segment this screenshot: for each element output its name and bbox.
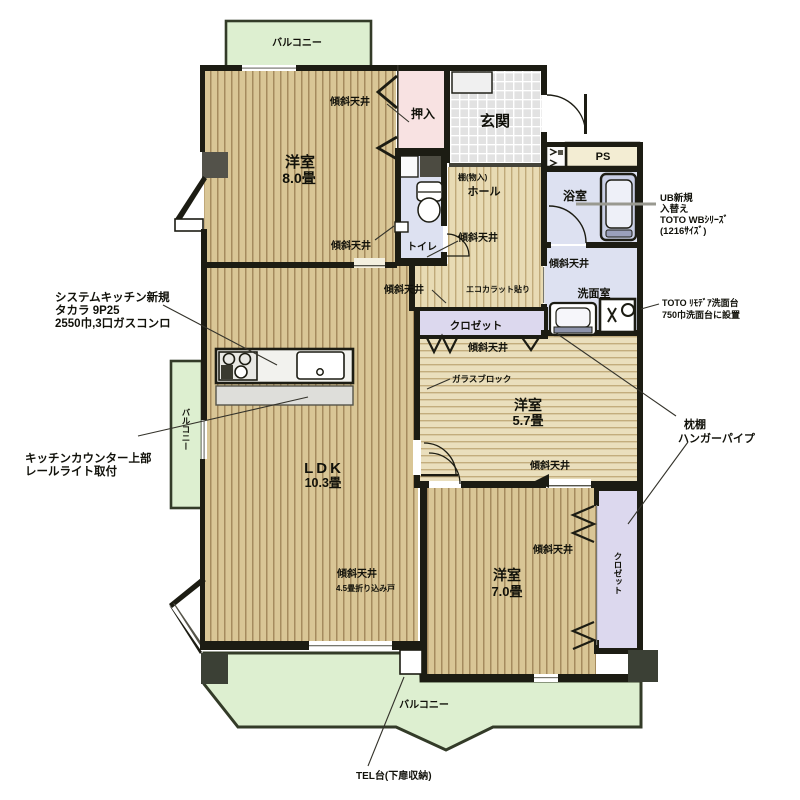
svg-text:ハンガーパイプ: ハンガーパイプ <box>678 431 756 445</box>
svg-text:傾斜天井: 傾斜天井 <box>383 283 424 296</box>
svg-text:傾斜天井: 傾斜天井 <box>457 231 498 244</box>
svg-text:洋室: 洋室 <box>493 567 521 583</box>
svg-text:入替え: 入替え <box>659 203 689 215</box>
svg-text:傾斜天井: 傾斜天井 <box>532 543 573 556</box>
svg-text:2550巾,3口ガスコンロ: 2550巾,3口ガスコンロ <box>55 316 171 330</box>
svg-text:玄関: 玄関 <box>480 112 510 130</box>
svg-text:5.7畳: 5.7畳 <box>512 413 543 428</box>
svg-text:洋室: 洋室 <box>514 397 542 413</box>
svg-text:ガラスブロック: ガラスブロック <box>452 374 511 384</box>
svg-text:LDK: LDK <box>304 460 344 477</box>
svg-text:傾斜天井: 傾斜天井 <box>467 341 508 354</box>
svg-text:TOTO WBｼﾘｰｽﾞ: TOTO WBｼﾘｰｽﾞ <box>660 214 728 226</box>
svg-text:バルコニー: バルコニー <box>181 407 191 450</box>
svg-text:押入: 押入 <box>411 106 435 121</box>
svg-text:8.0畳: 8.0畳 <box>282 170 315 186</box>
svg-text:10.3畳: 10.3畳 <box>305 476 342 490</box>
svg-text:傾斜天井: 傾斜天井 <box>548 257 589 270</box>
svg-text:エコカラット貼り: エコカラット貼り <box>466 284 530 294</box>
svg-text:レールライト取付: レールライト取付 <box>25 464 117 478</box>
svg-text:TOTO ﾘﾓﾃﾞｱ洗面台: TOTO ﾘﾓﾃﾞｱ洗面台 <box>662 297 739 308</box>
svg-text:ホール: ホール <box>468 185 501 198</box>
svg-text:キッチンカウンター上部: キッチンカウンター上部 <box>25 451 152 465</box>
svg-text:クロゼット: クロゼット <box>450 319 503 332</box>
svg-text:バルコニー: バルコニー <box>272 37 322 49</box>
svg-text:TEL台(下扉収納): TEL台(下扉収納) <box>356 769 432 782</box>
svg-text:4.5畳折り込み戸: 4.5畳折り込み戸 <box>336 583 395 593</box>
svg-text:クロゼット: クロゼット <box>613 551 623 594</box>
svg-text:傾斜天井: 傾斜天井 <box>336 567 377 580</box>
svg-text:浴室: 浴室 <box>563 188 587 203</box>
svg-text:(1216ｻｲｽﾞ): (1216ｻｲｽﾞ) <box>660 225 706 237</box>
svg-text:傾斜天井: 傾斜天井 <box>329 95 370 108</box>
svg-text:システムキッチン新規: システムキッチン新規 <box>55 290 170 304</box>
svg-text:UB新規: UB新規 <box>660 192 693 204</box>
svg-text:傾斜天井: 傾斜天井 <box>330 239 371 252</box>
svg-text:洋室: 洋室 <box>285 153 315 171</box>
svg-text:洗面室: 洗面室 <box>578 286 611 300</box>
svg-text:7.0畳: 7.0畳 <box>491 584 522 599</box>
svg-text:棚(物入): 棚(物入) <box>458 172 488 182</box>
svg-text:傾斜天井: 傾斜天井 <box>529 459 570 472</box>
svg-text:タカラ 9P25: タカラ 9P25 <box>55 303 120 317</box>
svg-text:枕棚: 枕棚 <box>684 417 706 431</box>
svg-text:PS: PS <box>596 151 611 163</box>
svg-text:750巾洗面台に設置: 750巾洗面台に設置 <box>662 309 740 320</box>
svg-text:トイレ: トイレ <box>407 241 437 253</box>
svg-text:バルコニー: バルコニー <box>399 699 449 711</box>
